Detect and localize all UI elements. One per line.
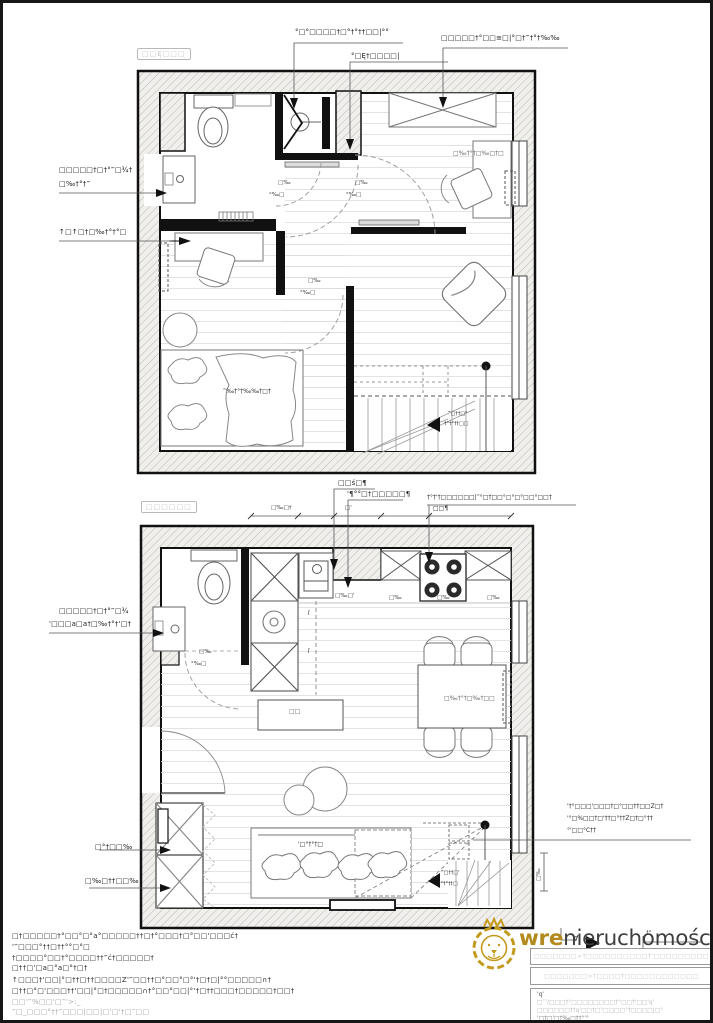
lower-label-wc-sink-1: □□□□□†□†°‴□¾	[59, 608, 129, 615]
brand-logo: wrenieruchomości	[519, 928, 713, 950]
footer-note-3: †□□□□°□□†°□□□□††‴ć†□□□□□†	[12, 955, 154, 962]
lower-stairs-label-1: ‴□††□'	[441, 871, 459, 876]
lower-dim-counter-4: □‰	[487, 596, 500, 602]
lower-label-kitchen-tall: '¶°°□†□□□□□¶	[347, 491, 410, 498]
lower-label-island: □□	[289, 709, 300, 715]
lower-label-kitchen-hob-2: □□¶	[433, 506, 448, 512]
upper-room-tag: □□Ę□□□	[137, 48, 191, 60]
lower-label-sofa: '□°†°†□	[298, 842, 323, 848]
upper-dim-c1: □‰	[308, 279, 321, 285]
title-block-row-3: 'q' □‴'/□□□†°□□□□□□□□†°□□†'□□'q' □□□□□□†…	[530, 988, 713, 1023]
footer-note-7: □□'‴%□□'□‴'>:_	[12, 999, 81, 1006]
upper-label-wardrobe: □□□□□†°□□≡□|°□†‴†°†‰‰	[441, 35, 560, 42]
upper-dim-a2: °‰□	[269, 193, 284, 199]
floor-plan-linework	[3, 3, 710, 1020]
lower-dim-wc-1: □‰	[199, 650, 212, 656]
upper-plan	[59, 43, 568, 473]
lower-dim-counter-2: □‰	[389, 596, 402, 602]
lower-elec-1: ʃ	[308, 611, 310, 617]
floor-plan-sheet: □□Ę□□□ °□°□□□□†□°†°††□□|°° °□Ę†□□□□| □□□…	[0, 0, 713, 1023]
lower-label-wardrobe-b: □‰□††□□‰	[85, 878, 139, 885]
upper-label-door: °□Ę†□□□□|	[351, 53, 400, 60]
upper-stairs-label-2: †°†°††□□	[444, 422, 468, 427]
lower-stairs-label-2: †°†°††□	[438, 882, 458, 887]
footer-note-1: □†□□□□□†°□□°□°a°□□□□□††□†°□□□†□°□□'□□□ć†	[12, 933, 238, 940]
footer-note-4: □††□'□a□°a□°†□†	[12, 965, 88, 972]
upper-stairs-label-1: ‴□††□°	[448, 412, 468, 417]
lower-room-tag: □□□□□□	[141, 501, 197, 513]
footer-note-5: ↑□□□†'□□|°□††□††□□□□Z'‴□□††□°□□°□°'†□†□|…	[12, 977, 271, 984]
upper-dim-c2: °‰□	[300, 291, 315, 297]
lower-right-note-3: °'□□°C††	[567, 828, 596, 834]
upper-dim-b1: □‰	[355, 181, 368, 187]
footer-note-2: '‴□□□°††□††°°□°□	[12, 944, 90, 951]
title-block-row-1: □□□□□□□>†□□□□□□□□□□†'□□□□□□□□□	[530, 948, 713, 965]
lower-dim-top-a: □‰□†	[271, 506, 292, 512]
lower-label-wc-sink-2: '□□□a□a†□‰†°†'□†	[49, 621, 131, 628]
lower-label-table: □‰†°†□‰†□□	[444, 696, 495, 702]
upper-label-shower: °□°□□□□†□°†°††□□|°°	[295, 29, 389, 36]
lower-dim-wc-2: °‰□	[191, 662, 206, 668]
upper-dim-b2: °‰□	[346, 193, 361, 199]
lower-elec-2: ʃ	[308, 649, 310, 655]
lower-label-wardrobe-a: □°†□□‰	[95, 844, 132, 851]
lower-right-note-2: '°□%□□†□'††□°††Z□†□°††	[567, 816, 653, 822]
footer-note-6: □††□°□'□□□††'□□|°□†□□□□□∩†°□□°□□|°'†□††□…	[12, 988, 295, 995]
lower-dim-counter-1: □‰□'	[335, 594, 354, 600]
lower-label-kitchen-sink: □□ś□¶	[338, 480, 367, 487]
lower-label-kitchen-hob: †°†'†□□□□□□|‴°□†□□°□°□°□□°□□†	[427, 495, 552, 501]
lower-vertical-dim: □‰	[536, 868, 542, 881]
lower-dim-counter-3: □‰	[437, 596, 450, 602]
upper-dim-a1: □‰	[278, 181, 291, 187]
lower-right-note-1: '†°□□□'□□□†□°□□††□□Z□†	[567, 804, 663, 810]
upper-label-sink-2: □‰†°†‴	[59, 181, 90, 188]
upper-label-sink-1: □□□□□†□†°‴□¾†	[59, 167, 132, 174]
upper-label-bed: ‴‰†°†‰‰†□†	[223, 389, 271, 395]
title-block-row-2: □□□□□□□>†□□□□†□□□□□□□□□□□□	[530, 967, 713, 985]
lower-dim-top-b: □'	[345, 506, 352, 512]
upper-label-window: □‰†°†□‰□†□	[453, 151, 504, 157]
upper-label-desk: ↑□↑□†□‰†°†°□	[59, 229, 126, 236]
footer-note-8: ‴□_□□□°††‴□□□|□□|□'□'†□‴□□	[12, 1009, 149, 1016]
lower-plan	[49, 489, 703, 950]
